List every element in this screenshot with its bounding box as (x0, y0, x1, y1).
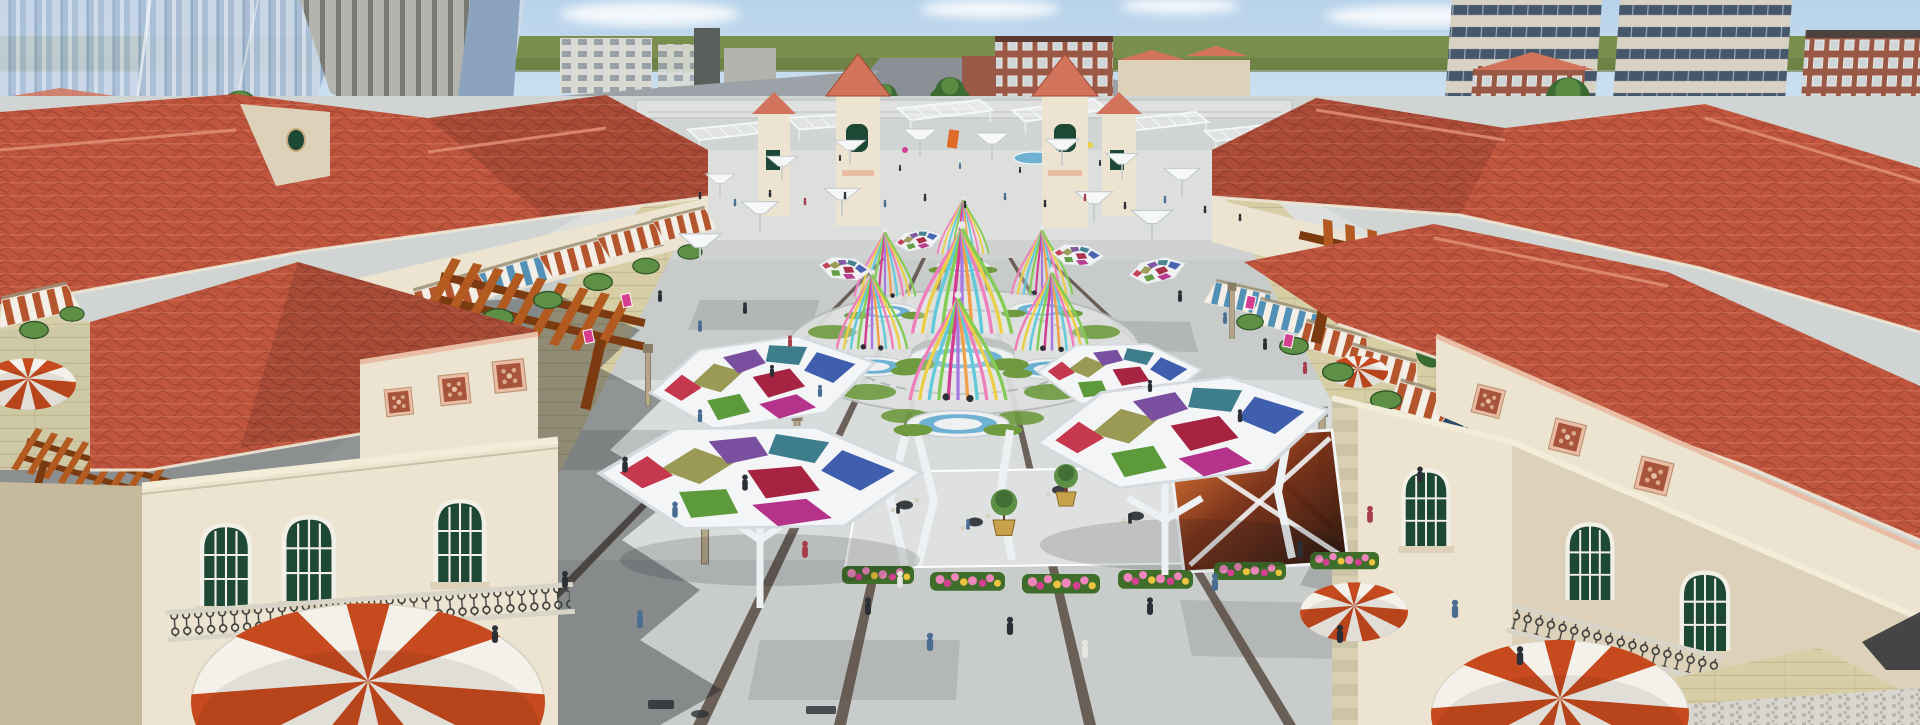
pergola-left (409, 254, 654, 419)
cafe-tables (891, 483, 1151, 531)
left-window-1 (196, 525, 256, 614)
left-window-3 (430, 501, 490, 590)
canopy-columns (890, 424, 1292, 565)
pebble-curb (1660, 688, 1920, 725)
geo-canopy-right-lower (1034, 372, 1332, 492)
geo-canopy-left-lower (597, 416, 924, 541)
cross-street (540, 36, 1250, 112)
foreground-objects (648, 700, 836, 718)
right-near-bay (1332, 398, 1512, 725)
corner-shadow-wedge (1862, 612, 1920, 670)
left-retail-block (0, 94, 717, 725)
mid-geo-canopies (817, 228, 1188, 287)
pergola-right (1272, 213, 1528, 385)
architectural-render (0, 0, 1920, 725)
right-medallion-wall (1436, 336, 1920, 624)
right-corner-pavement (1540, 648, 1920, 725)
dome-awning-left (88, 460, 649, 725)
right-main-roof (1244, 224, 1920, 540)
lamp-posts (643, 283, 1328, 564)
left-arcade-wall (306, 198, 708, 344)
gate-tower-right (1032, 54, 1098, 228)
right-window-2 (1676, 573, 1734, 659)
left-upper-roof (0, 94, 708, 306)
gate-tower-left-outer (752, 92, 796, 216)
left-near-facade (142, 440, 558, 725)
walkway-right (1222, 192, 1800, 725)
sky (0, 0, 1920, 190)
distant-left-blocks (0, 28, 776, 165)
apartment-towers (1434, 0, 1920, 256)
right-near-facade (1512, 442, 1920, 725)
right-retail-block (1204, 98, 1920, 725)
left-edge-street (0, 306, 90, 470)
gate-tower-right-outer (1096, 92, 1142, 216)
left-balcony-rail (166, 582, 575, 642)
ground-shadows (0, 296, 1920, 725)
right-arcade-wall (1212, 198, 1606, 352)
left-near-facade-side (0, 482, 142, 725)
right-bay-window (1398, 470, 1454, 553)
render-canvas (0, 0, 1920, 725)
gate-tower-left (826, 54, 890, 226)
gate-towers (752, 54, 1142, 228)
left-gable (240, 104, 330, 186)
plaza-paving (0, 96, 1920, 725)
pergola-left-corner (0, 424, 183, 553)
clouds (560, 0, 1515, 27)
paving-strips (423, 258, 1547, 725)
dome-awning-right-small (1269, 539, 1440, 684)
dome-awning-right (1356, 533, 1765, 725)
geo-canopies (597, 331, 1340, 608)
right-window-1 (1562, 524, 1618, 607)
flower-beds (842, 552, 1379, 594)
left-lower-roof (90, 262, 536, 470)
trellis-row (688, 99, 1286, 151)
cafe-pavilion (842, 424, 1379, 594)
ribbon-pavilion-cluster (785, 196, 1141, 437)
geo-canopy-left-upper (647, 331, 878, 434)
brick-building (995, 40, 1113, 100)
walkway-left (150, 192, 704, 725)
right-upper-roof (1212, 98, 1920, 332)
glass-kiosk (1168, 430, 1348, 572)
horizon-greenbelt (0, 36, 1920, 70)
geo-canopy-right-upper (1036, 338, 1202, 409)
left-medallion-wall (360, 334, 538, 498)
play-accents (857, 129, 1093, 165)
glass-towers (0, 0, 525, 364)
dome-awning-left-edge (0, 321, 104, 447)
umbrella-canopies (679, 129, 1200, 268)
background-right-trees (1538, 78, 1828, 194)
crowd (492, 155, 1523, 665)
right-balcony-rail (1506, 603, 1725, 685)
left-window-2 (278, 517, 340, 608)
